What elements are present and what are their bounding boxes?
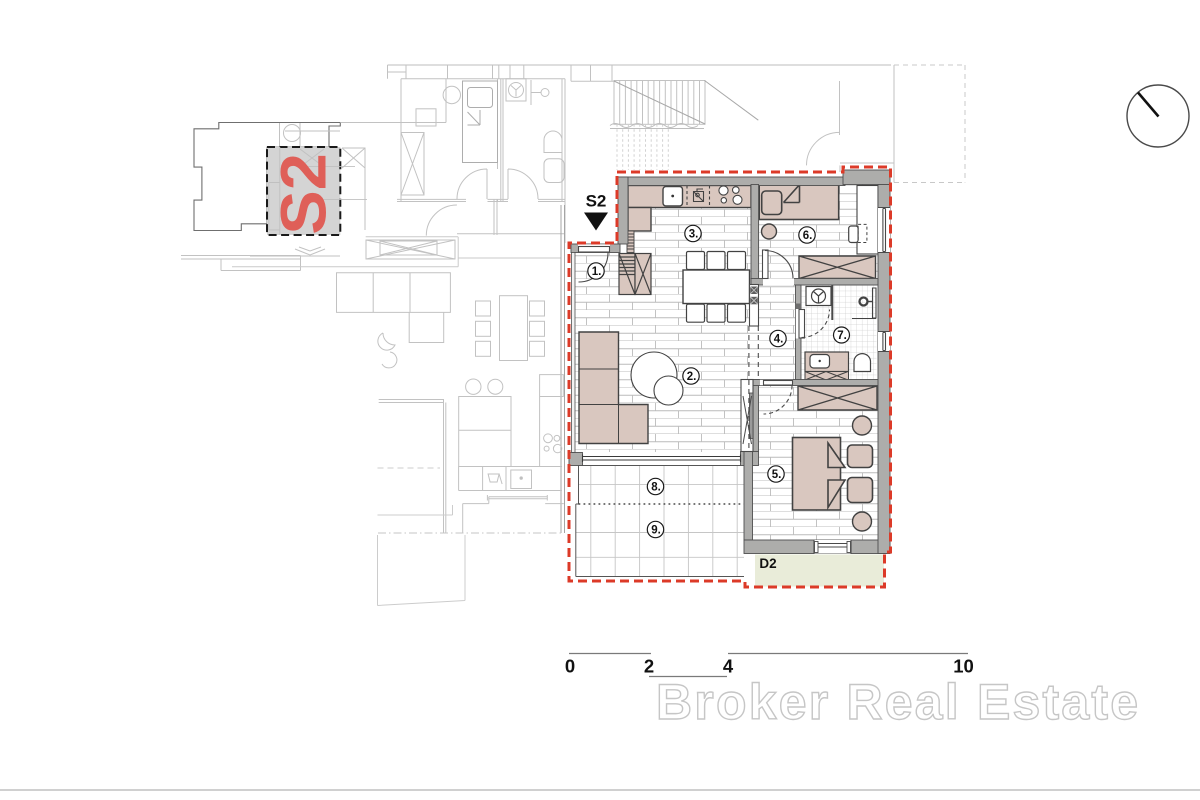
- svg-text:1.: 1.: [592, 266, 602, 278]
- svg-text:2: 2: [644, 656, 654, 677]
- svg-text:6.: 6.: [803, 230, 813, 242]
- svg-text:3.: 3.: [689, 229, 699, 241]
- svg-text:8.: 8.: [651, 482, 661, 494]
- svg-text:D2: D2: [759, 556, 776, 571]
- svg-text:5.: 5.: [772, 469, 782, 481]
- svg-text:0: 0: [565, 656, 575, 677]
- svg-text:4.: 4.: [774, 334, 784, 346]
- svg-text:9.: 9.: [651, 525, 661, 537]
- svg-text:7.: 7.: [837, 330, 847, 342]
- svg-text:Broker Real Estate: Broker Real Estate: [656, 674, 1140, 730]
- svg-text:S2: S2: [268, 153, 339, 235]
- svg-text:2.: 2.: [687, 371, 697, 383]
- svg-text:S2: S2: [586, 192, 607, 211]
